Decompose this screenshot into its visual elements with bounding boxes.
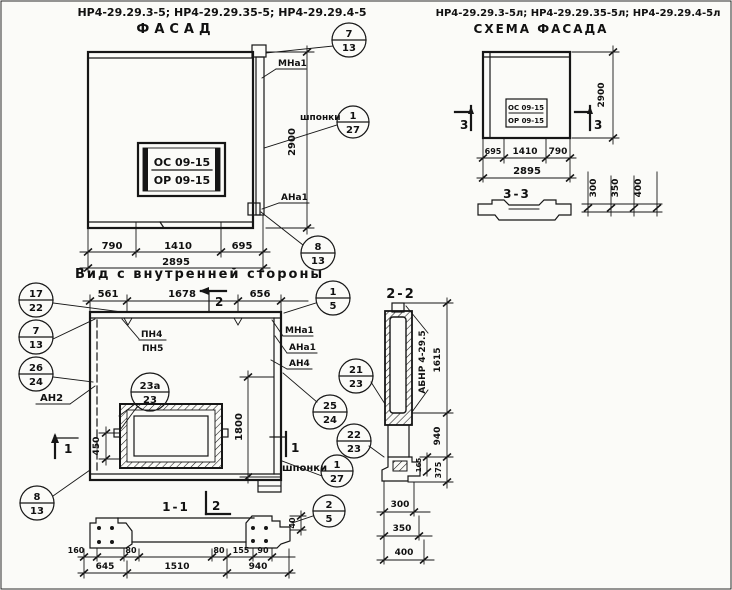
svg-text:350: 350: [393, 524, 412, 534]
svg-text:1800: 1800: [234, 413, 245, 441]
callout-21-23: 21 23: [339, 359, 385, 404]
svg-text:400: 400: [634, 179, 644, 198]
stamp-top: ОС 09-15: [154, 156, 210, 169]
callout-8-13-facade: 8 13: [261, 212, 335, 270]
svg-text:МНа1: МНа1: [278, 59, 307, 69]
svg-text:24: 24: [323, 415, 337, 426]
svg-text:790: 790: [549, 147, 568, 157]
label-mna1-inner: МНа1: [272, 320, 314, 336]
svg-text:ПН4: ПН4: [141, 330, 162, 340]
svg-text:17: 17: [29, 289, 43, 300]
svg-text:940: 940: [433, 427, 443, 446]
svg-text:3: 3: [460, 118, 468, 132]
svg-text:2: 2: [326, 500, 333, 511]
svg-text:ПН5: ПН5: [142, 344, 163, 354]
blueprint-sheet: НР4-29.29.3-5; НР4-29.29.35-5; НР4-29.29…: [0, 0, 732, 590]
svg-text:АН2: АН2: [40, 393, 63, 404]
svg-text:23: 23: [349, 379, 363, 390]
svg-text:656: 656: [250, 289, 271, 300]
inner-view: Вид с внутренней стороны 561 1678 656 2: [19, 267, 385, 578]
svg-text:300: 300: [391, 500, 410, 510]
section-marker-2-top: 2: [199, 287, 226, 312]
svg-text:21: 21: [349, 365, 363, 376]
svg-text:155: 155: [233, 546, 250, 555]
facade-bottom-dims: 790 1410 695 2895: [80, 215, 270, 272]
svg-text:23: 23: [143, 395, 157, 406]
svg-text:25: 25: [323, 401, 337, 412]
drawing-canvas: НР4-29.29.3-5; НР4-29.29.35-5; НР4-29.29…: [0, 0, 732, 590]
svg-text:ОР 09-15: ОР 09-15: [508, 117, 544, 125]
svg-text:645: 645: [96, 562, 115, 572]
svg-text:2895: 2895: [513, 166, 541, 177]
section-marker-3-left: 3: [455, 106, 474, 132]
svg-text:1: 1: [334, 460, 341, 471]
section-1-1-title: 1-1: [162, 500, 190, 514]
stamp-bottom: ОР 09-15: [154, 174, 210, 187]
facade-panel-linework: [88, 45, 266, 228]
callout-26-24: 26 24: [19, 357, 93, 391]
svg-text:300: 300: [589, 179, 599, 198]
svg-text:2900: 2900: [287, 128, 298, 156]
dim-40: 40: [288, 511, 306, 535]
svg-text:13: 13: [29, 340, 43, 351]
svg-text:13: 13: [30, 506, 44, 517]
schema-bottom-dims: 695 1410 790 2895: [477, 138, 576, 182]
svg-text:450: 450: [92, 437, 102, 456]
inner-top-dims: 561 1678 656: [83, 289, 308, 312]
facade-dim-height: 2900: [266, 46, 314, 234]
svg-text:561: 561: [98, 289, 119, 300]
schema-stamp: ОС 09-15 ОР 09-15: [506, 99, 547, 127]
svg-text:5: 5: [326, 514, 333, 525]
svg-text:27: 27: [330, 474, 344, 485]
svg-text:165: 165: [415, 458, 423, 473]
svg-text:80: 80: [125, 546, 137, 555]
svg-text:26: 26: [29, 363, 43, 374]
facade-codes: НР4-29.29.3-5; НР4-29.29.35-5; НР4-29.29…: [77, 6, 366, 19]
callout-7-13-inner: 7 13: [19, 319, 95, 354]
dim-450: 450: [92, 427, 120, 465]
schema-panel-linework: [483, 52, 570, 138]
svg-text:2: 2: [212, 499, 220, 513]
svg-text:шпонки: шпонки: [300, 113, 341, 123]
svg-text:8: 8: [315, 242, 322, 253]
svg-text:2900: 2900: [597, 82, 607, 107]
svg-text:3-3: 3-3: [503, 187, 531, 201]
section-2-2: 2-2 АБНР 4-29.5 1615 940 3: [377, 287, 453, 564]
inner-title: Вид с внутренней стороны: [75, 267, 324, 282]
svg-text:7: 7: [33, 326, 40, 337]
svg-text:3: 3: [594, 118, 602, 132]
label-mna1-facade: МНа1: [262, 59, 307, 78]
svg-text:1: 1: [350, 111, 357, 122]
svg-text:1678: 1678: [168, 289, 196, 300]
svg-text:АНа1: АНа1: [281, 193, 308, 203]
schema-view: НР4-29.29.3-5л; НР4-29.29.35-5л; НР4-29.…: [436, 8, 721, 220]
svg-text:22: 22: [29, 303, 43, 314]
svg-text:1: 1: [330, 287, 337, 298]
facade-title: ФАСАД: [136, 22, 215, 37]
svg-text:шпонки: шпонки: [282, 463, 327, 474]
svg-text:375: 375: [434, 461, 443, 478]
callout-25-24: 25 24: [283, 373, 347, 429]
svg-text:13: 13: [311, 256, 325, 267]
svg-text:80: 80: [213, 546, 225, 555]
schema-codes: НР4-29.29.3-5л; НР4-29.29.35-5л; НР4-29.…: [436, 8, 721, 19]
svg-text:160: 160: [68, 546, 85, 555]
svg-text:1510: 1510: [164, 562, 189, 572]
svg-text:7: 7: [346, 29, 353, 40]
svg-text:940: 940: [249, 562, 268, 572]
section-2-2-bottom-dims: 300 350 400: [377, 482, 434, 564]
svg-text:2: 2: [215, 295, 223, 309]
svg-text:400: 400: [395, 548, 414, 558]
section-2-2-title: 2-2: [386, 287, 416, 302]
facade-stamp: ОС 09-15 ОР 09-15: [138, 143, 225, 196]
section-marker-1-left: 1: [51, 433, 78, 458]
svg-text:90: 90: [257, 546, 269, 555]
callout-22-23: 22 23: [337, 424, 384, 458]
label-ana1-facade: АНа1: [262, 193, 309, 209]
section-2-2-member: [382, 303, 420, 481]
svg-text:13: 13: [342, 43, 356, 54]
svg-text:350: 350: [611, 179, 621, 198]
callout-8-13-inner: 8 13: [20, 470, 90, 520]
svg-text:8: 8: [34, 492, 41, 503]
svg-text:1410: 1410: [164, 241, 192, 252]
svg-text:27: 27: [346, 125, 360, 136]
svg-text:ОС 09-15: ОС 09-15: [508, 104, 544, 112]
svg-text:23: 23: [347, 444, 361, 455]
callout-2-5: 2 5: [292, 495, 345, 527]
section-marker-3-right: 3: [575, 106, 602, 132]
svg-text:1: 1: [291, 441, 299, 455]
svg-text:АНа1: АНа1: [289, 343, 316, 353]
svg-text:24: 24: [29, 377, 43, 388]
svg-text:790: 790: [102, 241, 123, 252]
svg-text:1410: 1410: [512, 147, 537, 157]
label-an4: АН4: [271, 359, 312, 369]
svg-text:1: 1: [64, 442, 72, 456]
svg-text:1615: 1615: [433, 347, 443, 372]
section-marker-2-bottom: 2: [206, 492, 230, 514]
svg-text:5: 5: [330, 301, 337, 312]
svg-text:АБНР 4-29.5: АБНР 4-29.5: [418, 330, 428, 393]
svg-text:23а: 23а: [140, 381, 161, 392]
svg-text:695: 695: [232, 241, 253, 252]
section-1-1-profile: [90, 516, 290, 548]
callout-1-5: 1 5: [284, 281, 350, 315]
svg-text:МНа1: МНа1: [285, 326, 314, 336]
svg-text:22: 22: [347, 430, 361, 441]
schema-title: Схема фасада: [474, 22, 609, 36]
facade-view: НР4-29.29.3-5; НР4-29.29.35-5; НР4-29.29…: [77, 6, 369, 272]
label-shponki-facade: шпонки 1 27: [264, 106, 369, 148]
label-shponki-inner: шпонки 1 27: [282, 455, 353, 487]
svg-text:АН4: АН4: [289, 359, 310, 369]
inner-bottom-dims: 160 80 80 155 90 645 1510 940: [68, 546, 295, 578]
svg-text:695: 695: [485, 147, 502, 156]
window-opening: [114, 404, 228, 468]
